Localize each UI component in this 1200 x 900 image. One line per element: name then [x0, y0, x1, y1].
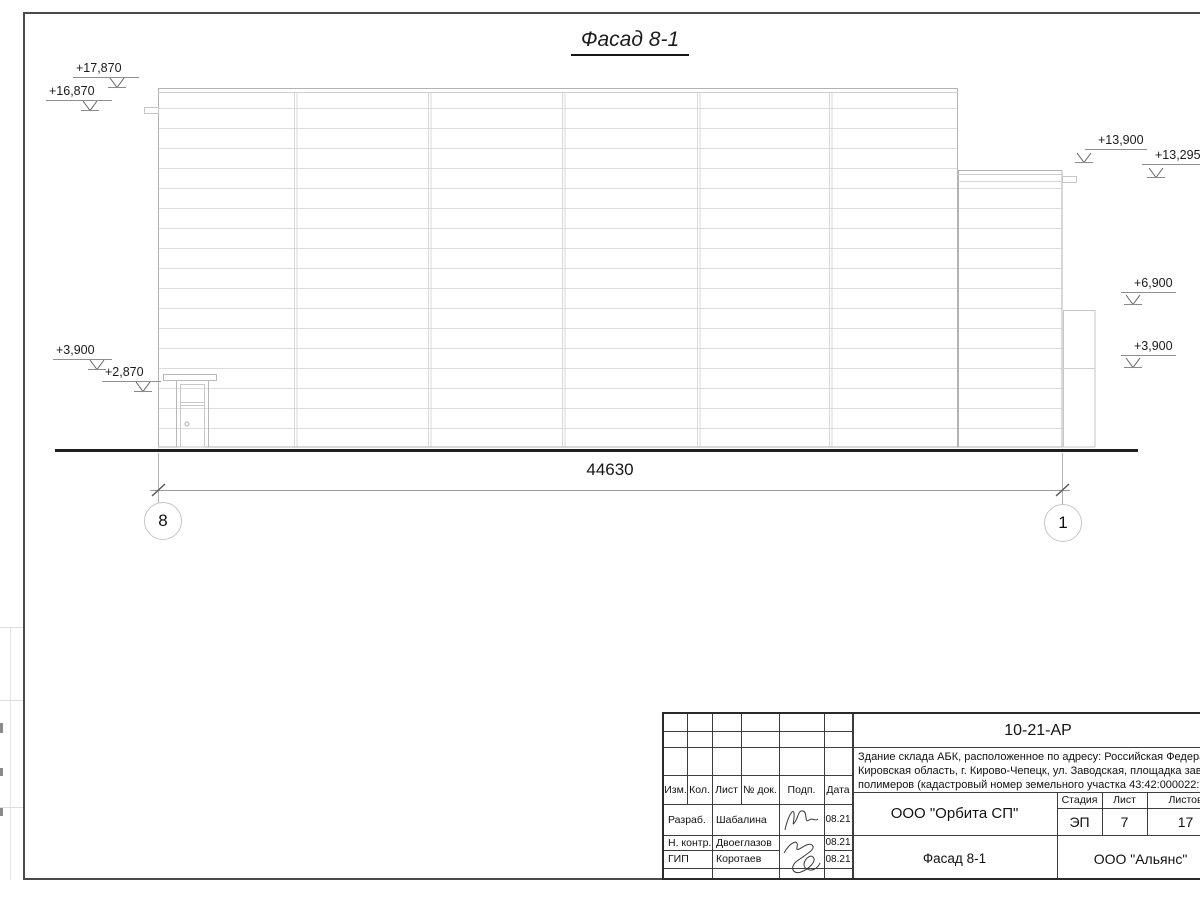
sheets-total: 17 — [1147, 808, 1200, 835]
drawing-sheet: { "drawing": { "title": "Фасад 8-1", "to… — [0, 0, 1200, 900]
axis-bubble-1: 1 — [1044, 504, 1082, 542]
elevation-mark-13900: +13,900 — [1085, 134, 1147, 150]
approval-date: 08.21 — [824, 850, 852, 868]
axis-number: 8 — [158, 511, 167, 531]
approval-name: Шабалина — [712, 804, 779, 835]
door-canopy — [164, 375, 217, 381]
elevation-mark-3900-right: +3,900 — [1121, 340, 1176, 356]
sheet-number: 7 — [1102, 808, 1147, 835]
col-header-data: Дата — [824, 775, 852, 804]
description-line: Кировская область, г. Кирово-Чепецк, ул.… — [858, 764, 1200, 778]
stage-value: ЭП — [1057, 808, 1102, 835]
approval-name: Коротаев — [712, 850, 779, 868]
elevation-mark-3900-left: +3,900 — [53, 344, 112, 360]
elevation-mark-13295: +13,295 — [1142, 149, 1200, 165]
project-description: Здание склада АБК, расположенное по адре… — [858, 750, 1200, 792]
axis-bubble-8: 8 — [144, 502, 182, 540]
description-line: Здание склада АБК, расположенное по адре… — [858, 750, 1200, 764]
axis-number: 1 — [1058, 513, 1067, 533]
col-header-izm: Изм. — [664, 775, 687, 804]
approval-role: ГИП — [664, 850, 712, 868]
approval-name: Двоеглазов — [712, 835, 779, 850]
approval-date: 08.21 — [824, 835, 852, 850]
level-arrow-icon — [1147, 167, 1165, 179]
entrance-door — [164, 375, 217, 448]
sheet-name: Фасад 8-1 — [852, 835, 1057, 880]
sheets-label: Листов — [1147, 792, 1200, 808]
col-header-podp: Подп. — [779, 775, 824, 804]
approval-date: 08.21 — [824, 804, 852, 835]
approval-role: Разраб. — [664, 804, 712, 835]
elevation-mark-6900: +6,900 — [1121, 277, 1176, 293]
elevation-value: +13,900 — [1085, 134, 1147, 150]
designer-company: ООО "Орбита СП" — [852, 792, 1057, 835]
level-arrow-icon — [1124, 294, 1142, 306]
annex-outline — [1064, 311, 1096, 448]
dimension-label: 44630 — [525, 460, 695, 480]
stage-label: Стадия — [1057, 792, 1102, 808]
level-arrow-icon — [1075, 152, 1093, 164]
signature-shabalina — [779, 804, 824, 836]
elevation-value: +3,900 — [53, 344, 112, 360]
col-header-kol: Кол. — [687, 775, 712, 804]
approval-role: Н. контр. — [664, 835, 712, 850]
elevation-mark-2870: +2,870 — [102, 366, 161, 382]
elevation-mark-16870: +16,870 — [46, 85, 112, 101]
description-line: полимеров (кадастровый номер земельного … — [858, 778, 1200, 792]
level-arrow-icon — [1124, 357, 1142, 369]
door-handle — [185, 422, 189, 426]
parapet-tab-left — [145, 108, 159, 114]
title-block: Изм. Кол. Лист № док. Подп. Дата Разраб.… — [662, 712, 1200, 880]
elevation-value: +3,900 — [1121, 340, 1176, 356]
building-outline — [145, 89, 1096, 448]
col-header-list: Лист — [712, 775, 741, 804]
sheet-label: Лист — [1102, 792, 1147, 808]
col-header-doc: № док. — [741, 775, 779, 804]
doc-number: 10-21-АР — [852, 714, 1200, 747]
client-company: ООО "Альянс" — [1057, 835, 1200, 880]
bay-joint-lines — [295, 92, 833, 447]
elevation-value: +17,870 — [73, 62, 139, 78]
parapet-tab-right — [1063, 177, 1077, 183]
level-arrow-icon — [134, 381, 152, 393]
elevation-value: +2,870 — [102, 366, 161, 382]
signature-dvoeglazov-korotaev — [779, 835, 824, 880]
elevation-value: +16,870 — [46, 85, 112, 101]
elevation-value: +6,900 — [1121, 277, 1176, 293]
elevation-mark-17870: +17,870 — [73, 62, 139, 78]
elevation-value: +13,295 — [1142, 149, 1200, 165]
level-arrow-icon — [81, 100, 99, 112]
panel-joint-lines — [158, 109, 1062, 429]
